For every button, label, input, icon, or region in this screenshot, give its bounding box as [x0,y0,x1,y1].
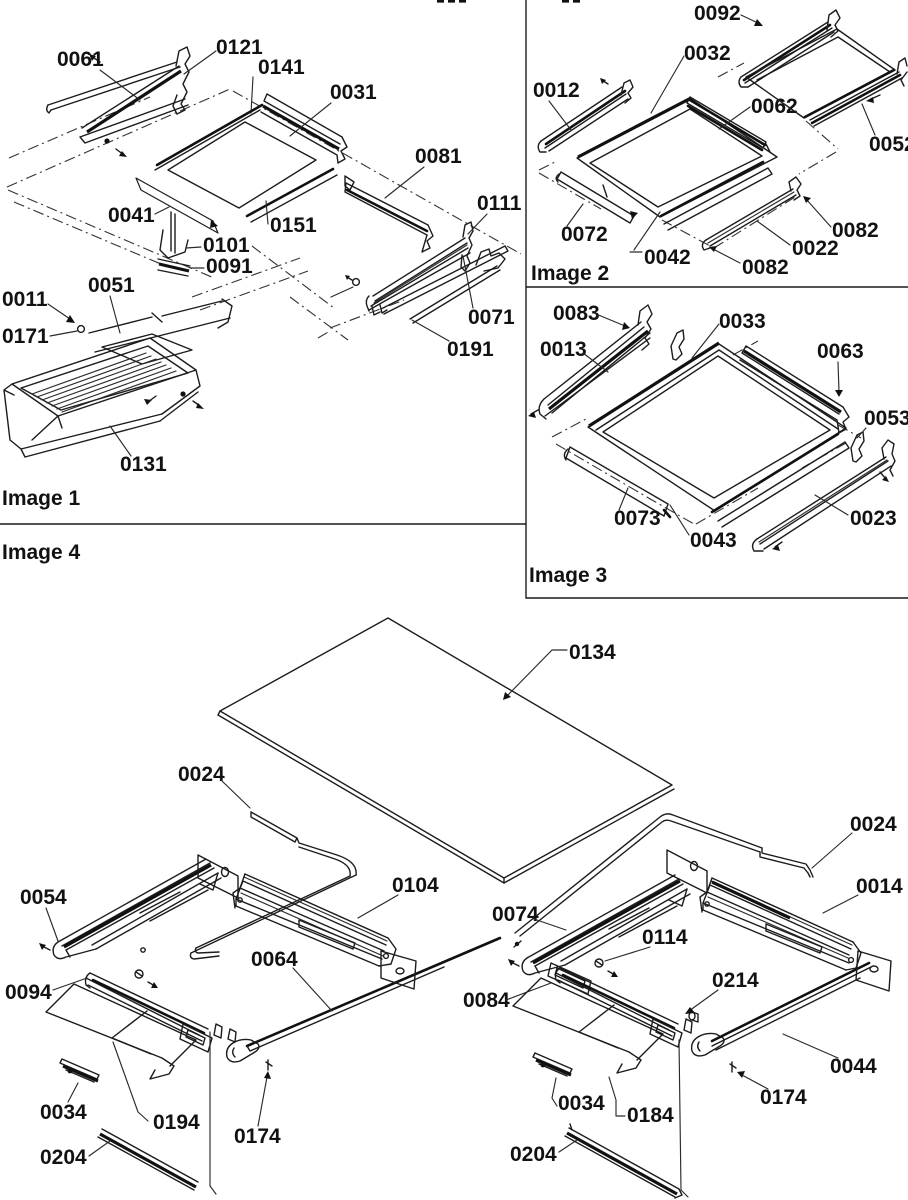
svg-text:0171: 0171 [2,325,49,348]
svg-text:0121: 0121 [216,36,263,59]
svg-text:0091: 0091 [206,255,253,278]
svg-text:0101: 0101 [203,234,250,257]
svg-text:0043: 0043 [690,529,737,552]
svg-text:0054: 0054 [20,886,67,909]
svg-text:0141: 0141 [258,56,305,79]
svg-text:0051: 0051 [88,274,135,297]
svg-text:0024: 0024 [850,813,897,836]
svg-text:0014: 0014 [856,875,903,898]
svg-text:0111: 0111 [477,192,522,215]
svg-text:0041: 0041 [108,204,155,227]
svg-text:0082: 0082 [832,219,879,242]
svg-text:Image 1: Image 1 [2,487,81,510]
svg-text:0031: 0031 [330,81,377,104]
svg-text:0073: 0073 [614,507,661,530]
svg-text:0082: 0082 [742,256,789,279]
svg-text:0191: 0191 [447,338,494,361]
svg-text:0013: 0013 [540,338,587,361]
svg-text:0064: 0064 [251,948,298,971]
svg-text:0024: 0024 [178,763,225,786]
svg-text:0072: 0072 [561,223,608,246]
svg-text:0174: 0174 [760,1086,807,1109]
svg-text:0204: 0204 [510,1143,557,1166]
svg-text:0194: 0194 [153,1111,200,1134]
svg-text:0204: 0204 [40,1146,87,1169]
svg-text:0151: 0151 [270,214,317,237]
svg-text:0071: 0071 [468,306,515,329]
svg-text:0174: 0174 [234,1125,281,1148]
svg-text:0034: 0034 [558,1092,605,1115]
svg-text:0011: 0011 [2,288,48,311]
svg-text:Image 3: Image 3 [529,564,607,587]
svg-text:0094: 0094 [5,981,52,1004]
svg-text:0042: 0042 [644,246,691,269]
svg-text:0074: 0074 [492,903,539,926]
svg-text:0052: 0052 [869,133,908,156]
svg-text:0044: 0044 [830,1055,877,1078]
svg-text:0012: 0012 [533,79,580,102]
svg-text:0053: 0053 [864,407,908,430]
svg-text:0131: 0131 [120,453,167,476]
svg-text:0081: 0081 [415,145,462,168]
svg-text:0104: 0104 [392,874,439,897]
svg-text:0062: 0062 [751,95,798,118]
svg-text:0033: 0033 [719,310,766,333]
svg-text:0134: 0134 [569,641,616,664]
svg-text:Image 4: Image 4 [2,541,81,564]
svg-text:0214: 0214 [712,969,759,992]
svg-text:0083: 0083 [553,302,600,325]
svg-text:0114: 0114 [642,926,688,949]
svg-text:0084: 0084 [463,989,510,1012]
svg-text:0184: 0184 [627,1104,674,1127]
svg-text:0023: 0023 [850,507,897,530]
svg-text:Image 2: Image 2 [531,262,609,285]
svg-text:0092: 0092 [694,2,741,25]
svg-text:0063: 0063 [817,340,864,363]
svg-text:0032: 0032 [684,42,731,65]
svg-text:0061: 0061 [57,48,104,71]
svg-text:0034: 0034 [40,1101,87,1124]
